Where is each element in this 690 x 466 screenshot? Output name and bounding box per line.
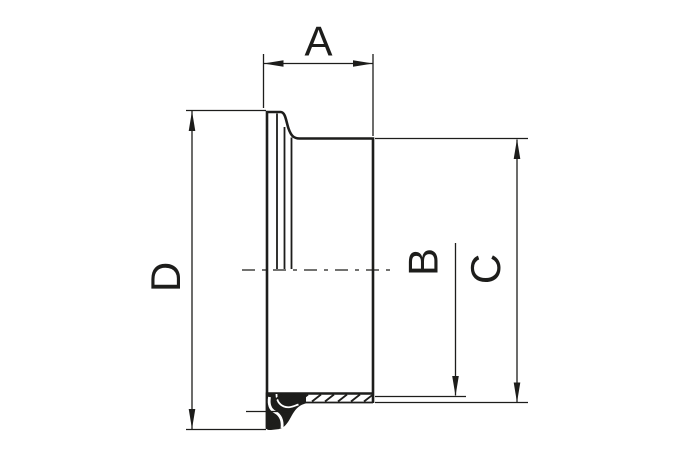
dim-a-arrow-right xyxy=(353,60,373,67)
dim-c-label: C xyxy=(462,254,509,284)
dim-c-arrow-down xyxy=(514,383,521,403)
dimension-b: B xyxy=(375,243,466,397)
dimension-a: A xyxy=(264,18,374,137)
part-geometry xyxy=(242,112,397,430)
dim-b-arrow-down xyxy=(452,376,459,396)
dim-a-label: A xyxy=(304,18,332,65)
drawing-canvas: A D B C xyxy=(0,0,690,466)
dim-a-arrow-left xyxy=(264,60,284,67)
dim-c-arrow-up xyxy=(514,139,521,159)
ferrule-section-drawing: A D B C xyxy=(0,0,690,466)
dimension-c: C xyxy=(375,139,528,403)
dim-b-label: B xyxy=(400,248,447,276)
dim-d-arrow-down xyxy=(189,409,196,429)
groove-edge-lines xyxy=(277,114,292,270)
dim-d-label: D xyxy=(142,262,189,292)
dim-d-arrow-up xyxy=(189,111,196,131)
